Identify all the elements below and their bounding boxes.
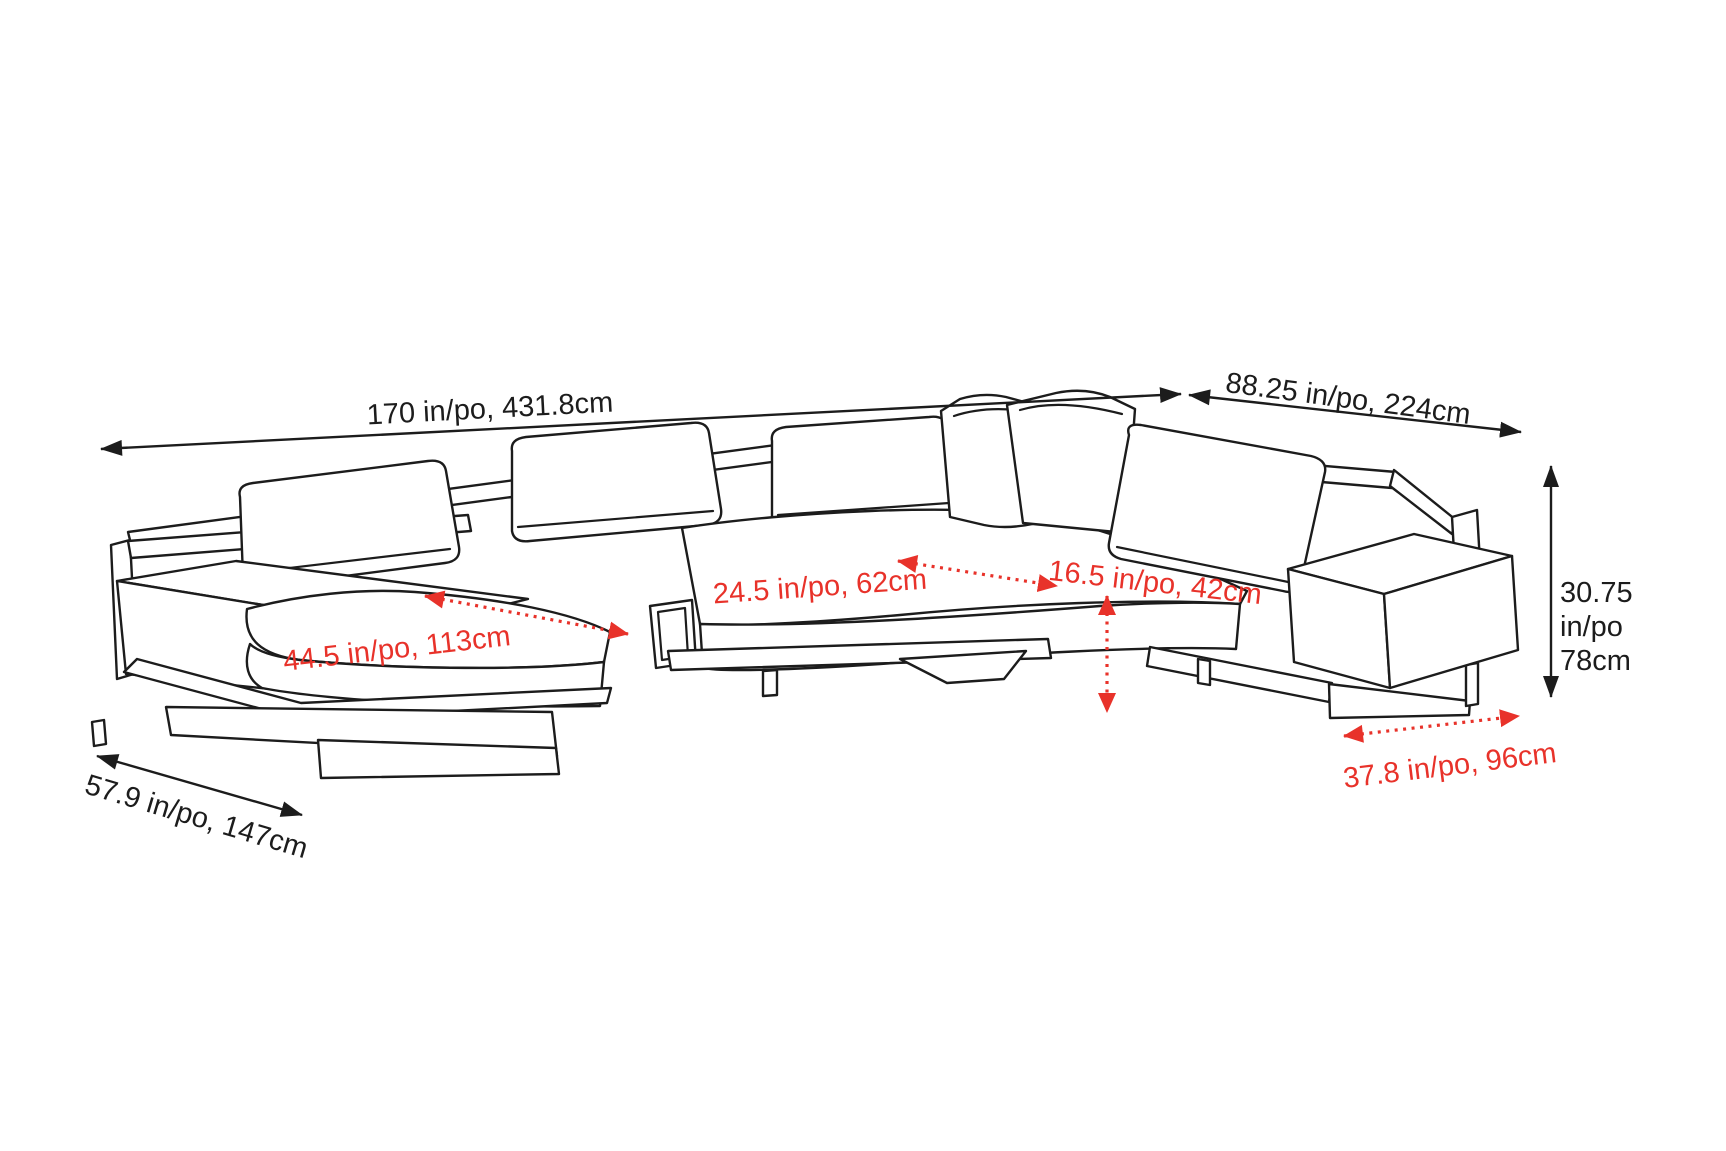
dimension-height-label-line1: 30.75 bbox=[1560, 577, 1633, 609]
chaise-plinth-lower bbox=[318, 740, 559, 778]
right-base-plinth bbox=[1329, 684, 1470, 718]
chaise-front-leg bbox=[92, 720, 106, 746]
dimension-right-depth: 88.25 in/po, 224cm bbox=[1189, 367, 1521, 432]
dimension-height-label-line2: in/po bbox=[1560, 611, 1623, 643]
middle-back-cushion-a bbox=[512, 423, 721, 542]
dimension-height-label-line3: 78cm bbox=[1560, 645, 1631, 677]
dimension-chaise-depth: 57.9 in/po, 147cm bbox=[81, 756, 311, 865]
right-base-leg-far bbox=[1466, 663, 1478, 706]
dimension-right-seat-width-label: 37.8 in/po, 96cm bbox=[1342, 737, 1559, 795]
dimension-right-seat-width-arrow bbox=[1344, 716, 1519, 736]
sofa-back-rail-corner bbox=[1390, 470, 1456, 534]
diagram-canvas: 170 in/po, 431.8cm 88.25 in/po, 224cm 30… bbox=[0, 0, 1726, 1151]
right-base-leg-small bbox=[1198, 659, 1210, 685]
dimension-height: 30.75 in/po 78cm bbox=[1551, 466, 1633, 697]
dimension-right-seat-width: 37.8 in/po, 96cm bbox=[1342, 716, 1559, 795]
sofa-dimension-diagram: 170 in/po, 431.8cm 88.25 in/po, 224cm 30… bbox=[0, 0, 1726, 1151]
middle-base-leg bbox=[763, 670, 777, 696]
dimension-right-depth-label: 88.25 in/po, 224cm bbox=[1224, 367, 1473, 431]
